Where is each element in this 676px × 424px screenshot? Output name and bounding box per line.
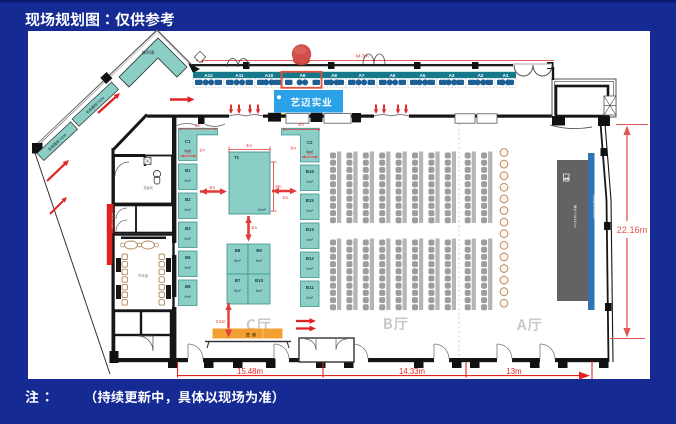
svg-text:A12: A12 bbox=[204, 73, 213, 78]
svg-text:6m²: 6m² bbox=[184, 237, 191, 241]
svg-text:B3: B3 bbox=[185, 226, 191, 231]
svg-text:A8: A8 bbox=[331, 73, 337, 78]
svg-text:6m²: 6m² bbox=[306, 180, 313, 184]
svg-text:B5: B5 bbox=[185, 255, 191, 260]
svg-text:24m²: 24m² bbox=[257, 208, 266, 212]
svg-text:6m²: 6m² bbox=[234, 289, 241, 293]
svg-text:A7: A7 bbox=[359, 73, 365, 78]
svg-text:6m²: 6m² bbox=[184, 179, 191, 183]
svg-text:C1: C1 bbox=[185, 139, 191, 144]
svg-text:6m²: 6m² bbox=[256, 289, 263, 293]
svg-text:14.33m: 14.33m bbox=[399, 367, 425, 376]
svg-text:6m²: 6m² bbox=[184, 208, 191, 212]
svg-text:3m: 3m bbox=[251, 225, 257, 230]
svg-text:2m: 2m bbox=[307, 151, 313, 156]
svg-text:1m: 1m bbox=[199, 148, 205, 153]
svg-text:3.5m: 3.5m bbox=[216, 319, 226, 324]
svg-text:6m²: 6m² bbox=[184, 295, 191, 299]
svg-text:B13: B13 bbox=[306, 227, 315, 232]
svg-text:6m²: 6m² bbox=[234, 259, 241, 263]
svg-text:B1: B1 bbox=[185, 168, 191, 173]
svg-text:6m²: 6m² bbox=[256, 259, 263, 263]
svg-text:B11: B11 bbox=[306, 285, 314, 290]
svg-text:1m: 1m bbox=[282, 195, 288, 200]
svg-text:2m: 2m bbox=[186, 150, 192, 155]
svg-text:6m²: 6m² bbox=[306, 296, 313, 300]
svg-text:A3: A3 bbox=[449, 73, 455, 78]
svg-text:B15: B15 bbox=[306, 198, 315, 203]
svg-text:22.16m: 22.16m bbox=[617, 225, 648, 235]
svg-text:B12: B12 bbox=[306, 256, 315, 261]
svg-text:B16: B16 bbox=[306, 169, 315, 174]
svg-text:4m: 4m bbox=[298, 122, 304, 127]
svg-text:A9: A9 bbox=[300, 73, 306, 78]
svg-text:3m: 3m bbox=[290, 146, 296, 151]
svg-text:B7: B7 bbox=[235, 278, 241, 283]
svg-text:15.48m: 15.48m bbox=[237, 367, 263, 376]
svg-text:6m²: 6m² bbox=[184, 266, 191, 270]
svg-text:B10: B10 bbox=[255, 278, 264, 283]
svg-text:A5: A5 bbox=[420, 73, 426, 78]
svg-text:T1: T1 bbox=[234, 155, 240, 160]
svg-text:C2: C2 bbox=[307, 140, 313, 145]
svg-text:A10: A10 bbox=[265, 73, 274, 78]
svg-text:A6: A6 bbox=[390, 73, 396, 78]
svg-text:6m²: 6m² bbox=[306, 238, 313, 242]
svg-text:A11: A11 bbox=[235, 73, 244, 78]
svg-text:B6: B6 bbox=[185, 284, 191, 289]
svg-text:B9: B9 bbox=[256, 248, 262, 253]
svg-text:A1: A1 bbox=[503, 73, 509, 78]
svg-text:13m: 13m bbox=[506, 367, 521, 376]
svg-text:B2: B2 bbox=[185, 197, 191, 202]
svg-text:6m²: 6m² bbox=[306, 209, 313, 213]
svg-text:3m: 3m bbox=[209, 185, 215, 190]
svg-text:4m: 4m bbox=[246, 143, 252, 148]
svg-text:6m²: 6m² bbox=[306, 267, 313, 271]
svg-text:A2: A2 bbox=[478, 73, 484, 78]
svg-text:B8: B8 bbox=[235, 248, 241, 253]
